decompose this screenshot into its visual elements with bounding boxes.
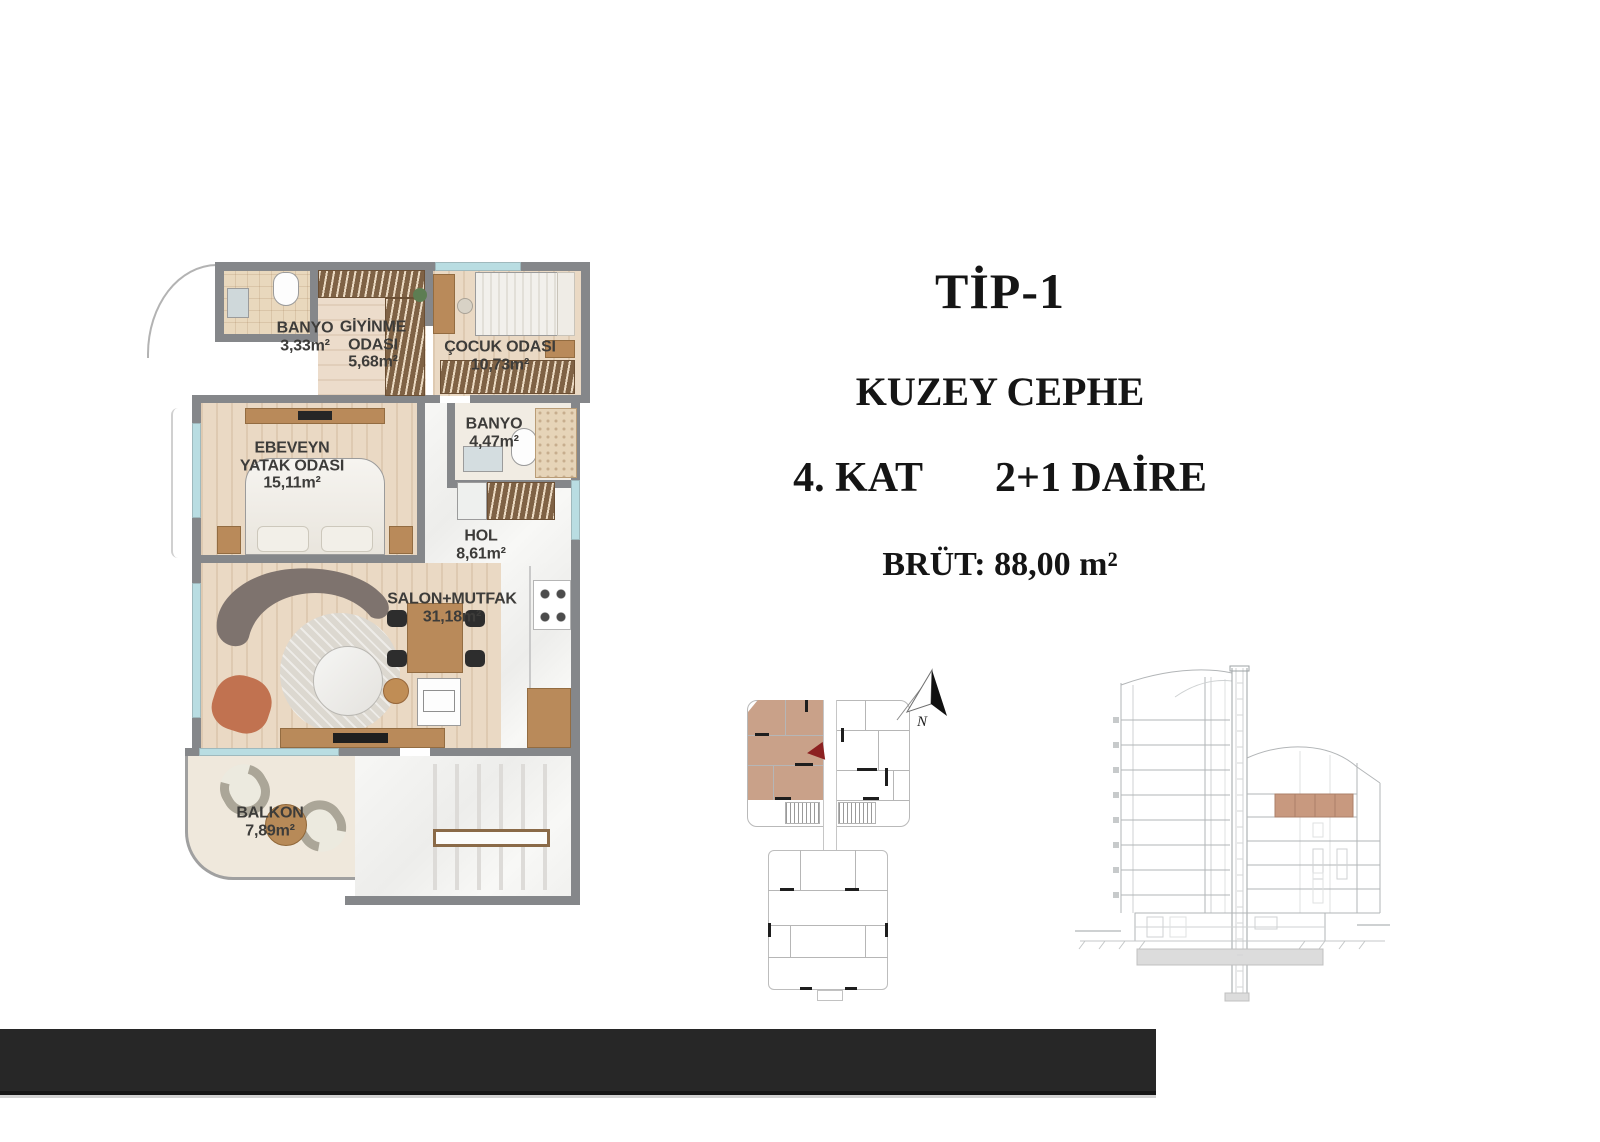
key-plan-line [768,957,888,958]
key-plan [745,695,915,1000]
window [192,583,201,718]
north-arrow-icon: N [895,668,951,732]
key-plan-wall [768,923,771,937]
key-plan-line [800,850,801,890]
key-plan-wall [805,700,808,712]
key-plan-line [790,925,791,957]
key-plan-line [878,730,879,770]
key-plan-line [865,700,866,730]
shower-icon [535,408,577,478]
desk-icon [433,274,455,334]
wall [430,748,580,756]
key-plan-stairs [838,802,876,824]
window [571,480,580,540]
room-label-banyo2: BANYO 4,47m² [448,415,540,450]
key-plan-wall [863,797,879,800]
gross-area-label: BRÜT: 88,00 m² [775,546,1225,584]
kitchen-cabinet-icon [527,688,571,748]
key-plan-wall [800,987,812,990]
stair-handrail [433,829,550,847]
key-plan-line [893,770,894,800]
sink-icon [227,288,249,318]
key-plan-line [768,925,888,926]
key-plan-wall [795,763,813,766]
key-plan-wall [775,797,791,800]
wall [470,395,590,403]
key-plan-wall [885,923,888,937]
north-arrow: N [895,668,951,732]
floor-unit-title: 4. KAT 2+1 DAİRE [775,454,1225,502]
wall [417,395,425,563]
key-plan-wall [755,733,769,736]
window [435,262,521,271]
window [199,748,339,756]
key-plan-line [855,850,856,890]
toilet-icon [273,272,299,306]
cabinet-icon [457,482,487,520]
key-plan-wall [885,768,888,786]
chair-icon [465,650,485,667]
wardrobe-icon [487,482,555,520]
key-plan-line [773,765,774,800]
chair-icon [457,298,473,314]
wall [215,262,224,342]
stair-treads [433,764,563,890]
plant-icon [413,288,427,302]
key-plan-line [865,925,866,957]
key-plan-wall [857,768,877,771]
coffee-table-icon [313,646,383,716]
apartment-floor-plan: BANYO 3,33m² GİYİNME ODASI 5,68m² ÇOCUK … [185,258,605,908]
wall [345,896,580,905]
pillow-icon [257,526,309,552]
building-section-drawing [1075,663,1505,1003]
key-plan-line [837,800,909,801]
floor-plan-sheet: BANYO 3,33m² GİYİNME ODASI 5,68m² ÇOCUK … [0,0,1600,1142]
room-label-salon: SALON+MUTFAK 31,18m² [372,590,532,625]
oven-door-line [423,690,455,712]
key-plan-stairs [785,802,820,824]
bottom-black-bar [0,1029,1156,1095]
type-title: TİP-1 [775,262,1225,320]
wall [192,395,440,403]
tv-icon [298,411,332,420]
key-plan-line [785,700,786,735]
room-label-balkon: BALKON 7,89m² [215,804,325,839]
nightstand-icon [389,526,413,554]
section-highlighted-floor [1275,794,1353,817]
unit-locator-arrow [806,742,825,762]
unit-label: 2+1 DAİRE [995,454,1207,502]
pillow-icon [321,526,373,552]
room-label-giyinme: GİYİNME ODASI 5,68m² [330,319,416,372]
key-plan-lower-outline [768,850,888,990]
outer-arc-top-left [147,264,223,358]
bottom-bar-shadow [0,1095,1156,1098]
nightstand-icon [217,526,241,554]
tv-icon [333,733,388,743]
key-plan-wall [780,888,794,891]
svg-text:N: N [916,714,928,730]
wall [571,756,580,905]
chair-icon [387,650,407,667]
outer-arc-left [171,408,185,558]
stove-icon [533,580,571,630]
room-label-cocuk: ÇOCUK ODASI 10,73m² [435,338,565,373]
room-label-ebeveyn: EBEVEYN YATAK ODASI 15,11m² [232,440,352,493]
facade-title: KUZEY CEPHE [775,368,1225,415]
window [192,423,201,518]
kitchen-counter-line [529,566,531,690]
key-plan-bottom-extension [817,990,843,1001]
wall [581,262,590,403]
side-table-icon [383,678,409,704]
headboard-icon [557,272,575,336]
key-plan-wall [845,987,857,990]
room-label-hol: HOL 8,61m² [441,527,521,562]
key-plan-wall [841,728,844,742]
wardrobe-icon [318,270,425,298]
key-plan-wall [845,888,859,891]
floor-label: 4. KAT [793,454,923,502]
